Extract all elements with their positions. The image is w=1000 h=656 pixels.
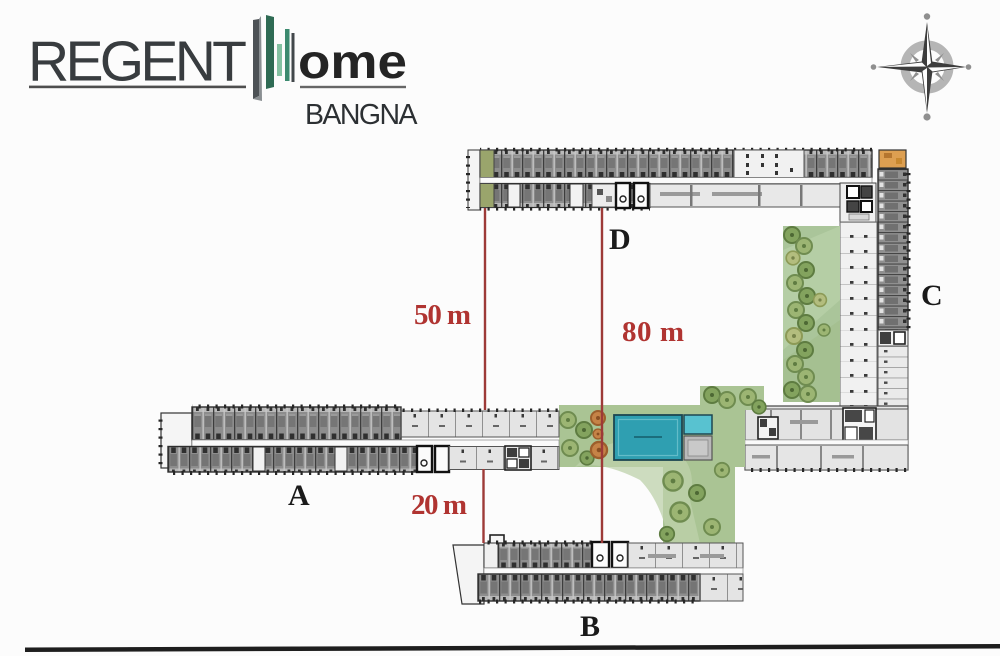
svg-text:50 m: 50 m — [414, 299, 471, 331]
svg-text:20 m: 20 m — [411, 489, 467, 521]
svg-text:D: D — [609, 223, 631, 256]
svg-text:C: C — [921, 279, 943, 312]
svg-text:A: A — [288, 479, 310, 512]
svg-text:B: B — [580, 610, 600, 643]
svg-text:ome: ome — [298, 36, 407, 89]
svg-text:80 m: 80 m — [622, 316, 684, 348]
svg-text:BANGNA: BANGNA — [305, 99, 418, 131]
svg-text:REGENT: REGENT — [28, 30, 247, 94]
